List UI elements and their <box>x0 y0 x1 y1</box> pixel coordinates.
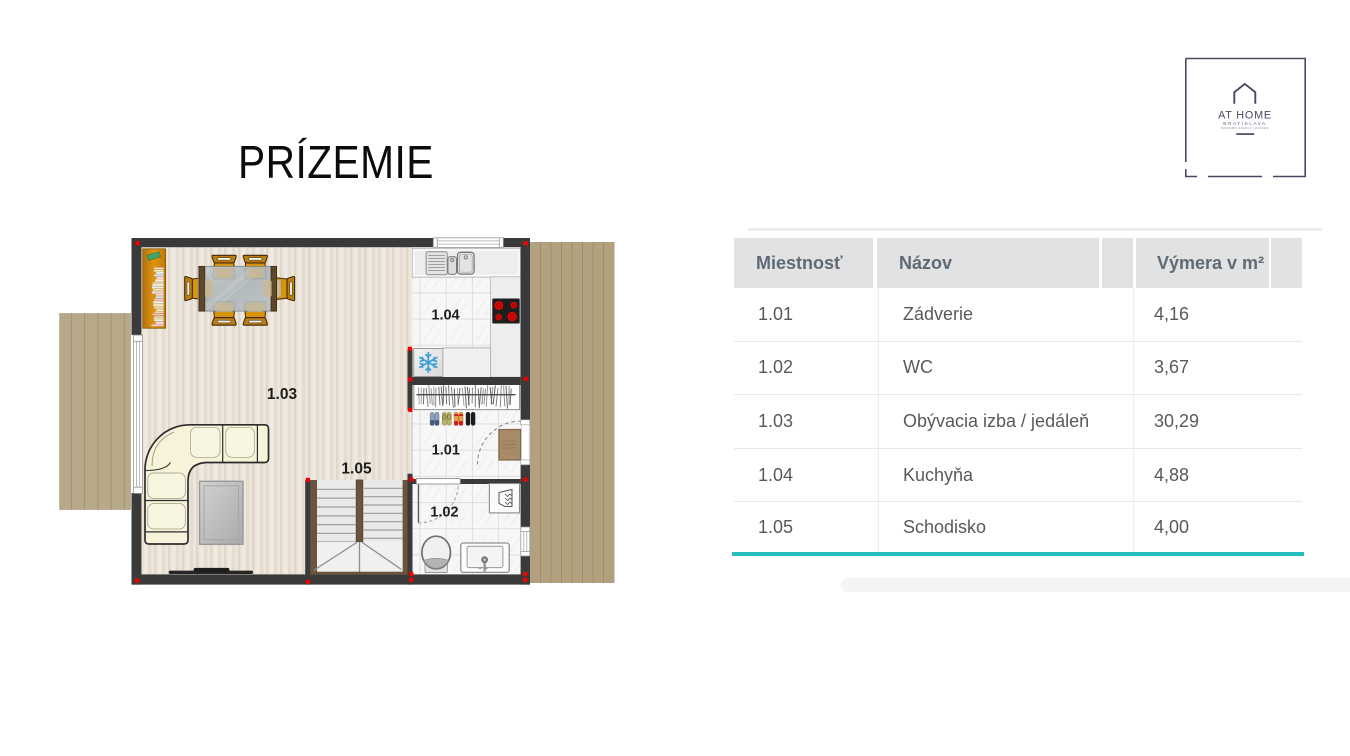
svg-text:1.03: 1.03 <box>267 386 298 403</box>
svg-text:1.04: 1.04 <box>431 308 459 324</box>
svg-text:1.02: 1.02 <box>430 505 458 521</box>
svg-text:1.01: 1.01 <box>432 443 460 459</box>
svg-text:MODERN FAMILY HOUSES: MODERN FAMILY HOUSES <box>1221 126 1269 130</box>
svg-text:AT HOME: AT HOME <box>1218 110 1272 122</box>
svg-text:1.05: 1.05 <box>341 461 372 478</box>
